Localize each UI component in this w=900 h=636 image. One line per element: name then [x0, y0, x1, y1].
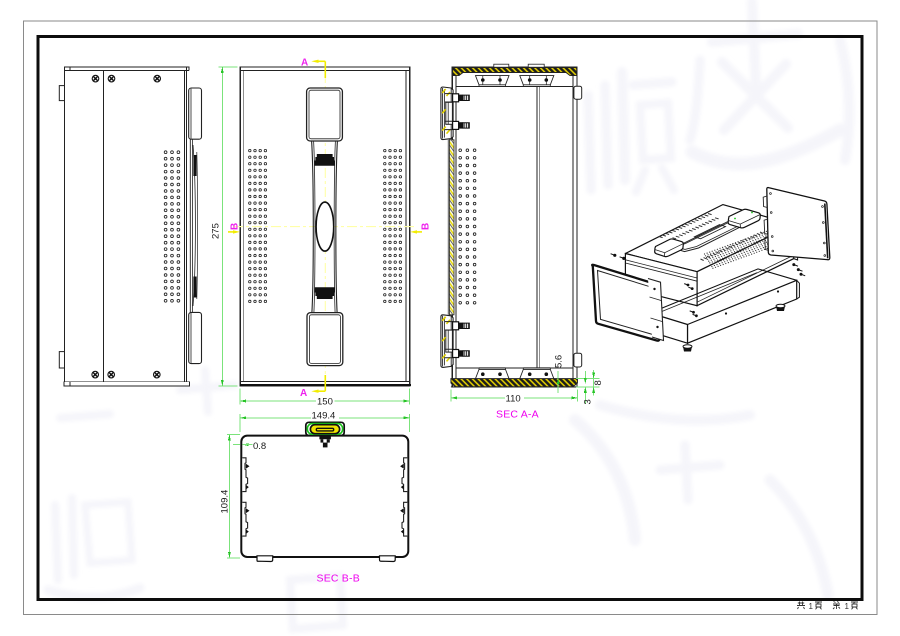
svg-text:1: 1 [845, 602, 850, 611]
svg-text:3: 3 [583, 399, 594, 404]
svg-text:149.4: 149.4 [312, 411, 336, 422]
svg-text:109.4: 109.4 [220, 490, 231, 514]
svg-text:A: A [300, 388, 307, 399]
svg-text:5.6: 5.6 [554, 355, 565, 368]
svg-text:1: 1 [809, 602, 814, 611]
svg-text:0.8: 0.8 [253, 441, 266, 452]
svg-text:8: 8 [593, 380, 604, 385]
svg-text:B: B [421, 223, 432, 230]
svg-text:B: B [230, 223, 241, 230]
svg-text:110: 110 [506, 394, 521, 405]
svg-text:275: 275 [211, 223, 222, 239]
svg-text:A: A [301, 58, 308, 69]
svg-text:SEC B-B: SEC B-B [317, 573, 360, 585]
svg-text:150: 150 [317, 396, 333, 407]
svg-text:SEC A-A: SEC A-A [496, 409, 539, 421]
